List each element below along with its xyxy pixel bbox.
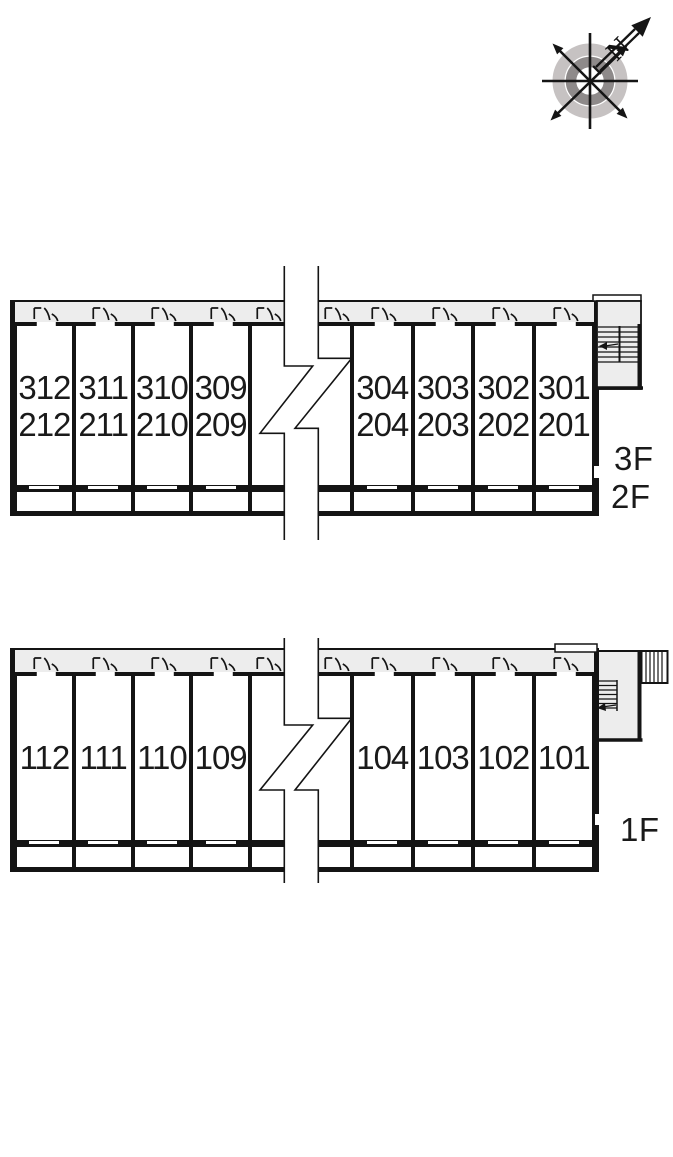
corridor-segment (15, 648, 74, 676)
room-110: 110 (133, 676, 192, 845)
room-103: 103 (413, 676, 474, 845)
door-swing-icon (30, 653, 62, 673)
room-number: 203 (417, 406, 469, 443)
corridor-segment (133, 648, 192, 676)
balcony (534, 490, 595, 516)
corridor-segment (413, 300, 474, 326)
room-312-212: 312 212 (15, 326, 74, 490)
balcony (15, 490, 74, 516)
floor-plan-canvas: N 312 212 (0, 0, 673, 1157)
room-number: 201 (538, 406, 590, 443)
room-111: 111 (74, 676, 133, 845)
stair-door-opening (595, 814, 600, 825)
window (428, 841, 458, 845)
room-number: 310 (136, 369, 188, 406)
corridor-segment (473, 648, 534, 676)
room-number: 210 (136, 406, 188, 443)
stair-treads (597, 681, 617, 708)
room-cell: 104 (352, 648, 413, 872)
door-swing-icon (206, 303, 238, 323)
floor-label-2f: 2F (611, 480, 651, 513)
room-304-204: 304 204 (352, 326, 413, 490)
room-number: 110 (137, 741, 187, 775)
corridor-segment (74, 648, 133, 676)
balcony (191, 490, 250, 516)
door-swing-icon (368, 653, 400, 673)
room-102: 102 (473, 676, 534, 845)
room-cell: 103 (413, 648, 474, 872)
room-cell: 311 211 (74, 300, 133, 516)
door-swing-icon (206, 653, 238, 673)
room-cell: 303 203 (413, 300, 474, 516)
room-cell: 304 204 (352, 300, 413, 516)
balcony (534, 845, 595, 872)
room-number: 312 (18, 369, 70, 406)
room-cell: 112 (15, 648, 74, 872)
room-302-202: 302 202 (473, 326, 534, 490)
room-cell: 310 210 (133, 300, 192, 516)
corridor-segment (352, 648, 413, 676)
compass-icon: N (538, 13, 673, 145)
room-303-203: 303 203 (413, 326, 474, 490)
balcony (74, 490, 133, 516)
window (206, 841, 236, 845)
room-number: 102 (477, 741, 529, 775)
corridor-segment (352, 300, 413, 326)
room-number: 302 (477, 369, 529, 406)
upper-stairwell (585, 288, 673, 403)
door-swing-icon (549, 303, 581, 323)
corridor-segment (74, 300, 133, 326)
room-number: 111 (80, 741, 127, 775)
balcony (191, 845, 250, 872)
window (488, 486, 518, 490)
corridor-segment (473, 300, 534, 326)
door-swing-icon (489, 653, 521, 673)
corridor-segment (191, 300, 250, 326)
balcony (473, 845, 534, 872)
corridor-segment (15, 300, 74, 326)
room-cell: 111 (74, 648, 133, 872)
room-109: 109 (191, 676, 250, 845)
window (29, 486, 59, 490)
room-cell: 309 209 (191, 300, 250, 516)
window (88, 486, 118, 490)
room-number: 112 (20, 741, 70, 775)
room-number: 211 (78, 406, 128, 443)
door-swing-icon (30, 303, 62, 323)
upper-building-right-wing: 304 204 303 203 (318, 300, 599, 516)
room-number: 212 (18, 406, 70, 443)
room-number: 303 (417, 369, 469, 406)
window (367, 841, 397, 845)
window (88, 841, 118, 845)
room-cell: 102 (473, 648, 534, 872)
floor-label-1f: 1F (620, 813, 660, 846)
balcony (473, 490, 534, 516)
room-number: 202 (477, 406, 529, 443)
stair-door-opening (594, 466, 600, 478)
door-swing-icon (489, 303, 521, 323)
door-swing-icon (88, 653, 120, 673)
lower-stairwell (545, 640, 673, 750)
door-swing-icon (428, 653, 460, 673)
plan-break-symbol (250, 636, 360, 885)
window (428, 486, 458, 490)
lower-building-left-wing: 112 111 (10, 648, 284, 872)
window (549, 841, 579, 845)
balcony (413, 490, 474, 516)
window (147, 486, 177, 490)
door-swing-icon (368, 303, 400, 323)
compass-north-label: N (600, 31, 635, 66)
room-310-210: 310 210 (133, 326, 192, 490)
room-cell: 312 212 (15, 300, 74, 516)
door-swing-icon (147, 303, 179, 323)
corridor-segment (133, 300, 192, 326)
room-cell: 302 202 (473, 300, 534, 516)
window (549, 486, 579, 490)
balcony (352, 845, 413, 872)
room-112: 112 (15, 676, 74, 845)
room-309-209: 309 209 (191, 326, 250, 490)
room-cell: 110 (133, 648, 192, 872)
door-swing-icon (147, 653, 179, 673)
room-number: 304 (356, 369, 408, 406)
window (367, 486, 397, 490)
room-number: 311 (78, 369, 128, 406)
room-number: 301 (538, 369, 590, 406)
balcony (413, 845, 474, 872)
room-number: 309 (195, 369, 247, 406)
room-104: 104 (352, 676, 413, 845)
balcony (74, 845, 133, 872)
corridor-segment (413, 648, 474, 676)
corridor-segment (191, 648, 250, 676)
window (29, 841, 59, 845)
plan-break-symbol (250, 264, 360, 542)
balcony (352, 490, 413, 516)
room-number: 104 (356, 741, 408, 775)
balcony (15, 845, 74, 872)
door-swing-icon (88, 303, 120, 323)
room-number: 204 (356, 406, 408, 443)
door-swing-icon (428, 303, 460, 323)
room-cell: 109 (191, 648, 250, 872)
window (206, 486, 236, 490)
window (488, 841, 518, 845)
floor-label-3f: 3F (614, 442, 654, 475)
upper-building-left-wing: 312 212 311 211 (10, 300, 284, 516)
room-number: 109 (195, 741, 247, 775)
window (147, 841, 177, 845)
balcony (133, 845, 192, 872)
room-number: 209 (195, 406, 247, 443)
room-311-211: 311 211 (74, 326, 133, 490)
room-number: 103 (417, 741, 469, 775)
balcony (133, 490, 192, 516)
